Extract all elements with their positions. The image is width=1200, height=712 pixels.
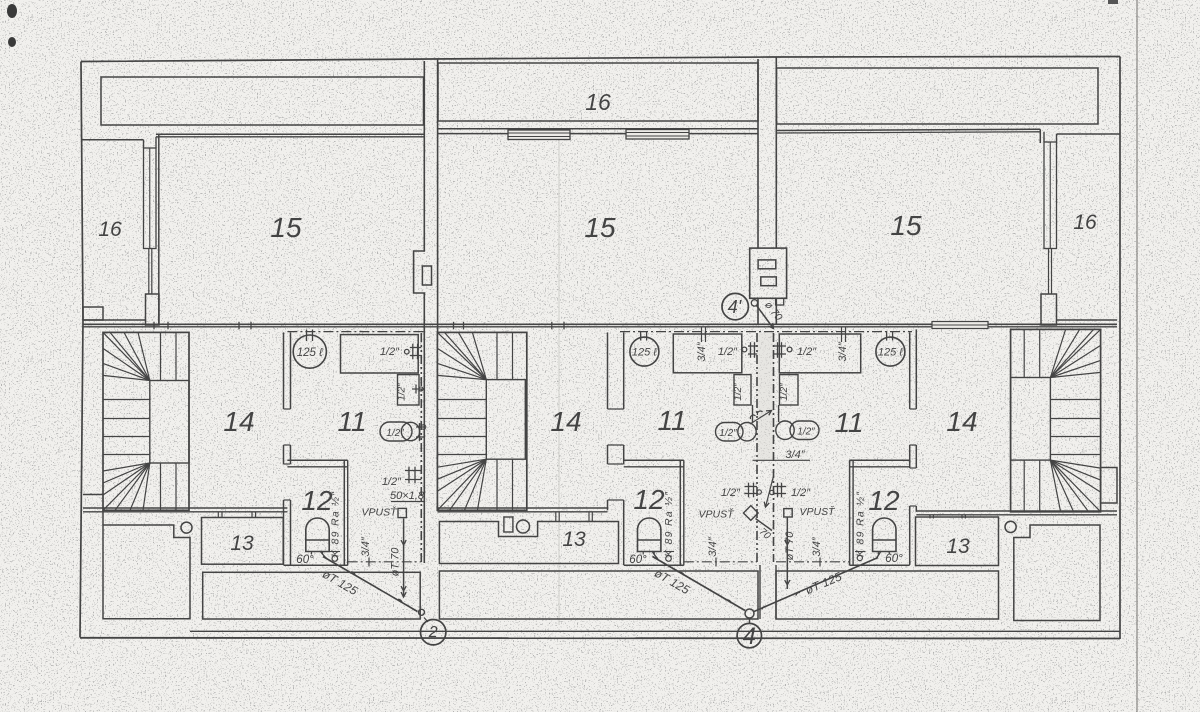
svg-text:16: 16	[585, 89, 611, 115]
svg-text:14: 14	[550, 406, 581, 437]
svg-text:1/2″: 1/2″	[779, 383, 790, 401]
svg-text:1/2″: 1/2″	[380, 346, 400, 358]
svg-text:3/4″: 3/4″	[696, 341, 708, 361]
svg-text:4': 4'	[728, 297, 742, 317]
svg-text:12: 12	[868, 485, 900, 516]
svg-text:1/2″: 1/2″	[719, 428, 737, 439]
svg-text:3/4″: 3/4″	[811, 536, 823, 556]
svg-text:2: 2	[428, 624, 438, 641]
svg-text:125 ℓ: 125 ℓ	[632, 347, 657, 359]
svg-text:125 ℓ: 125 ℓ	[297, 347, 323, 359]
svg-text:13: 13	[946, 535, 970, 558]
svg-text:VPUSŤ: VPUSŤ	[799, 505, 836, 518]
svg-text:125 ℓ: 125 ℓ	[878, 347, 903, 359]
svg-text:K 89 Ra ½″: K 89 Ra ½″	[330, 491, 342, 557]
svg-text:4: 4	[743, 623, 756, 650]
svg-text:50×1,8: 50×1,8	[390, 490, 425, 502]
svg-text:1/2″: 1/2″	[791, 487, 811, 499]
svg-text:15: 15	[890, 210, 922, 241]
svg-text:1/2″: 1/2″	[382, 476, 402, 488]
svg-text:øT 70: øT 70	[784, 531, 796, 561]
svg-text:60°: 60°	[296, 554, 314, 566]
svg-text:13: 13	[562, 528, 586, 551]
svg-text:1/2″: 1/2″	[386, 428, 404, 439]
svg-text:K 89 Ra ½″: K 89 Ra ½″	[855, 491, 867, 557]
svg-text:1/2″: 1/2″	[797, 346, 817, 358]
svg-text:11: 11	[657, 405, 686, 436]
svg-text:1/2″: 1/2″	[721, 487, 741, 499]
svg-text:1/2″: 1/2″	[397, 383, 408, 401]
svg-text:11: 11	[337, 406, 366, 437]
svg-text:VPUSŤ: VPUSŤ	[698, 508, 735, 521]
svg-text:3/4″: 3/4″	[837, 341, 849, 361]
svg-text:3/4″: 3/4″	[707, 536, 719, 556]
svg-text:K 89 Ra ½″: K 89 Ra ½″	[663, 491, 675, 557]
svg-text:11: 11	[834, 407, 863, 438]
svg-text:15: 15	[584, 212, 616, 243]
svg-text:60°: 60°	[885, 553, 903, 565]
svg-text:14: 14	[946, 406, 977, 437]
svg-text:15: 15	[270, 212, 302, 243]
svg-text:1/2″: 1/2″	[797, 427, 815, 438]
svg-text:13: 13	[230, 532, 254, 555]
svg-text:12: 12	[301, 485, 333, 516]
svg-text:1/2″: 1/2″	[733, 383, 744, 401]
svg-text:16: 16	[1073, 211, 1097, 234]
svg-text:3/4″: 3/4″	[785, 449, 805, 461]
svg-text:60°: 60°	[629, 554, 647, 566]
svg-text:1/2″: 1/2″	[718, 346, 738, 358]
svg-text:VPUSŤ: VPUSŤ	[361, 506, 398, 519]
svg-text:12: 12	[633, 484, 665, 515]
svg-text:14: 14	[223, 406, 254, 437]
svg-text:16: 16	[98, 218, 122, 241]
svg-text:3/4″: 3/4″	[360, 536, 372, 556]
